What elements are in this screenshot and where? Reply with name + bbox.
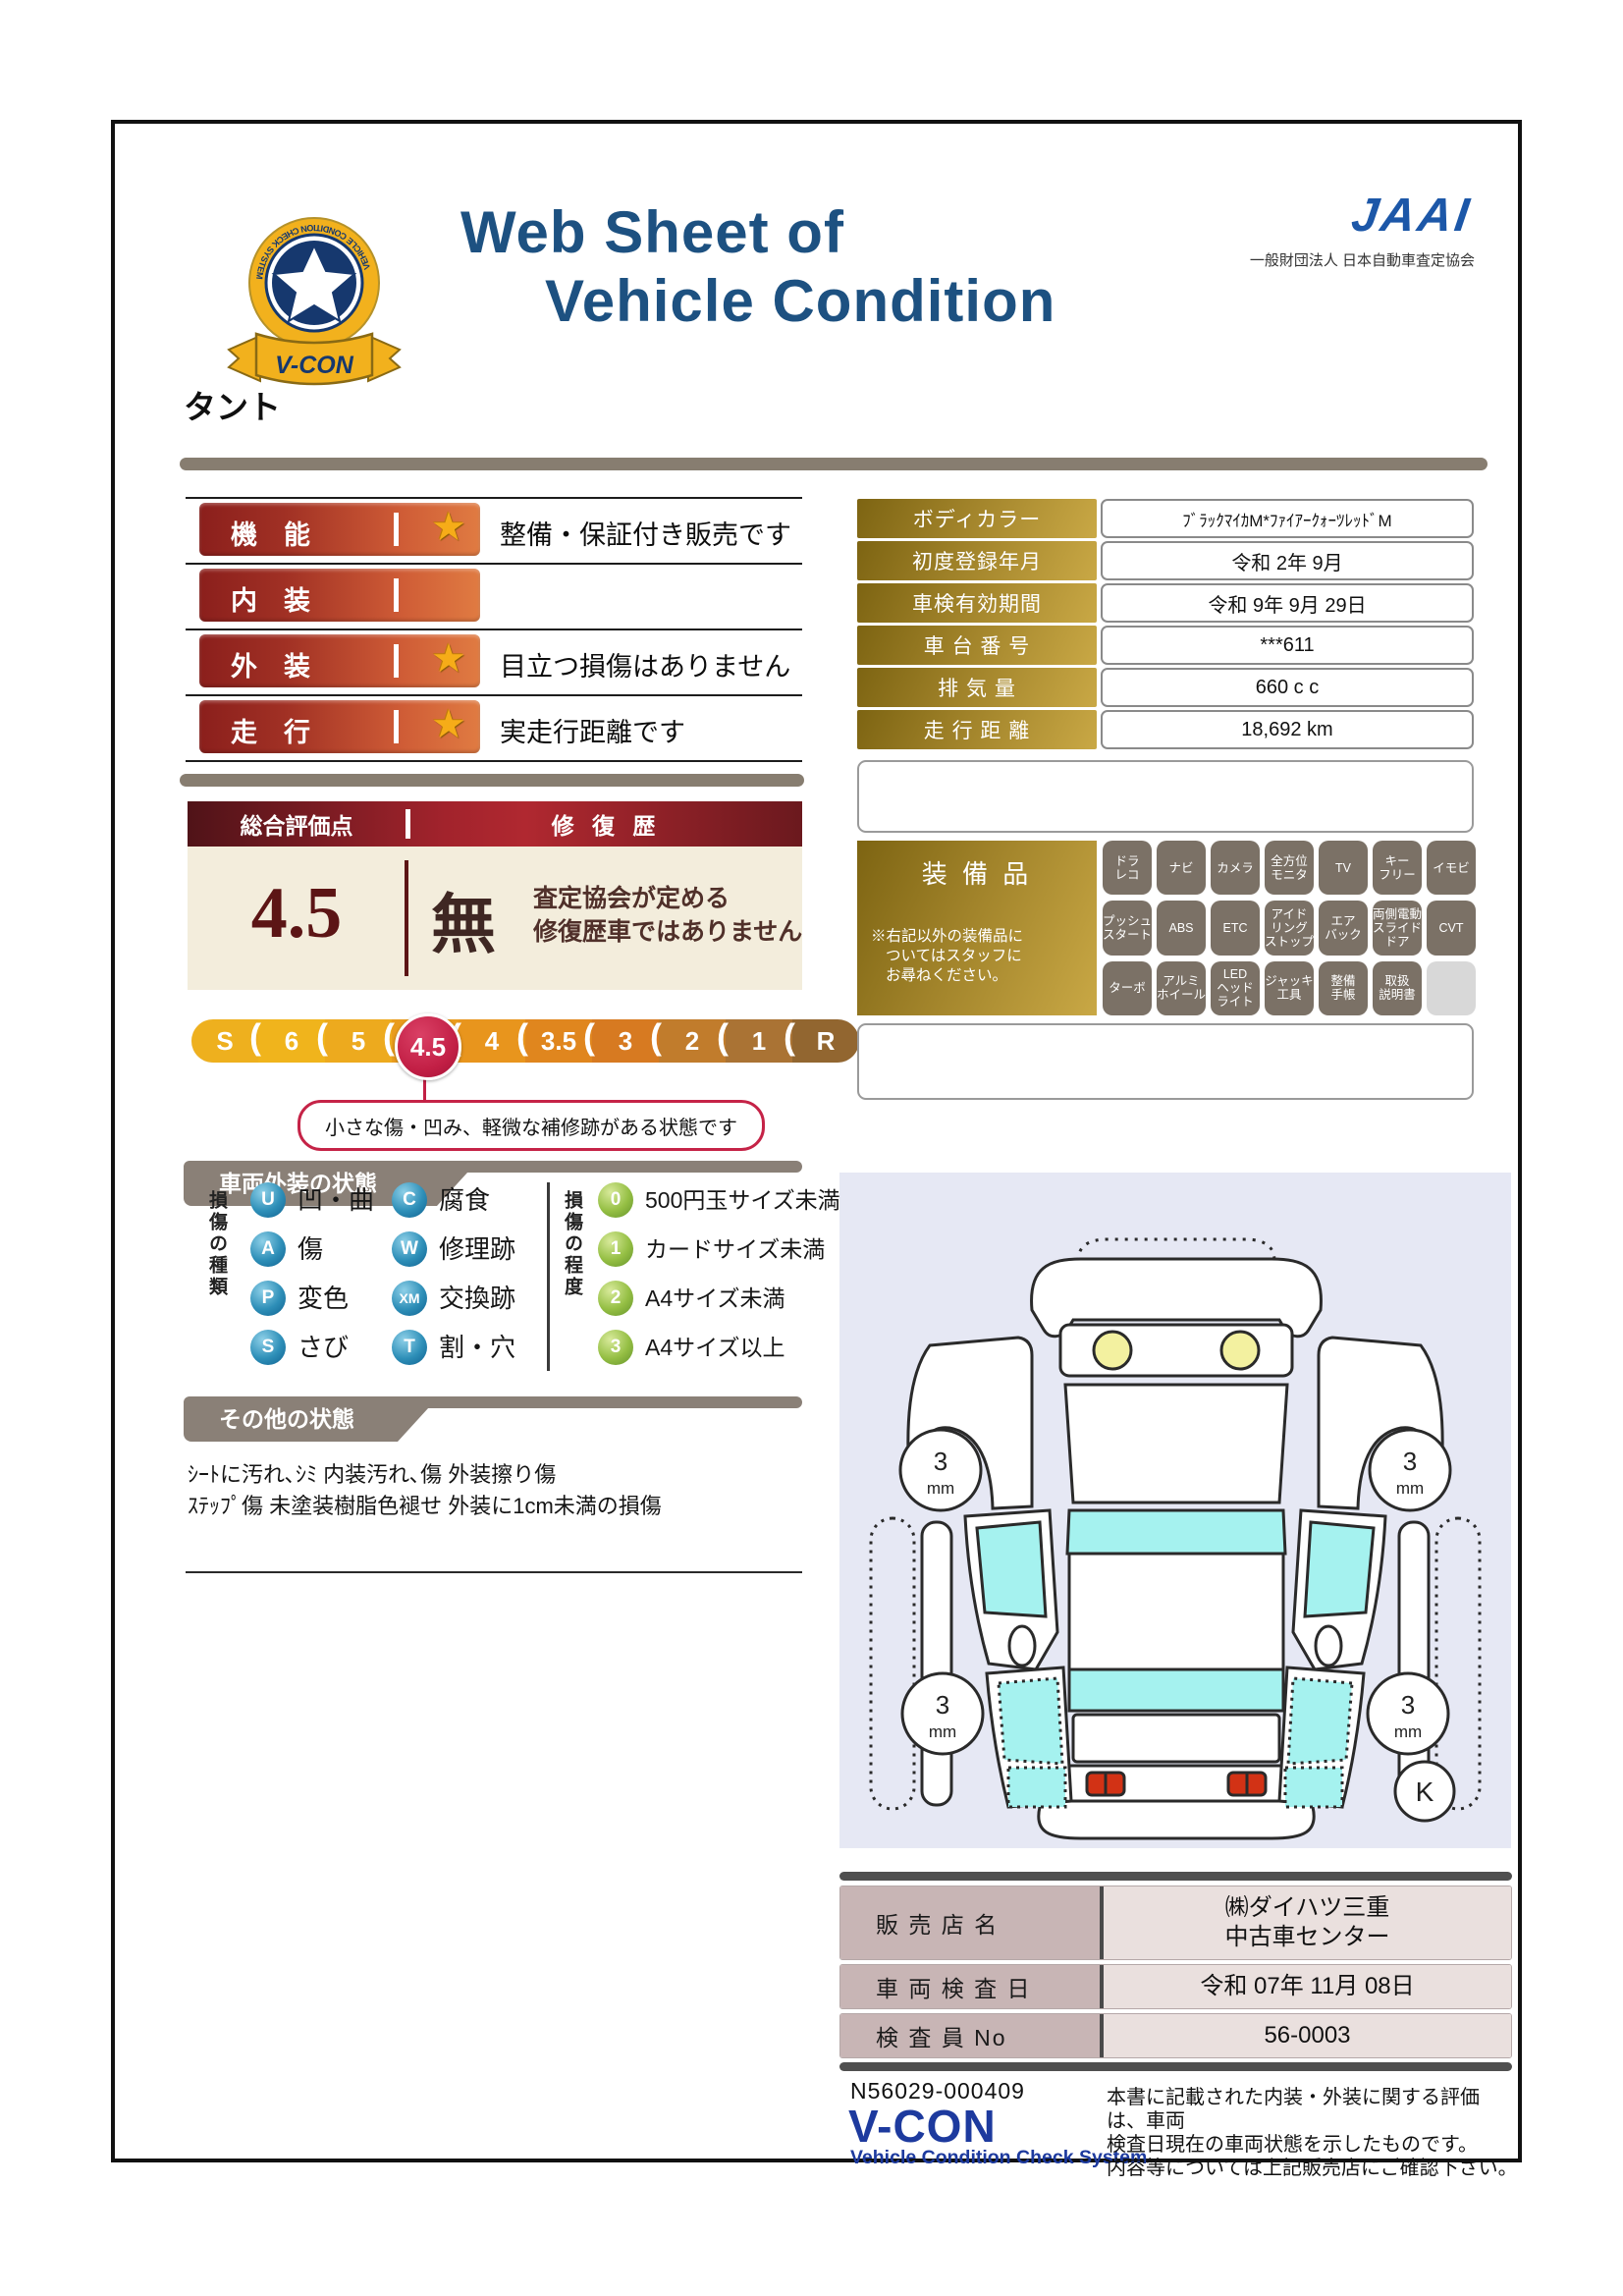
- assessment-vline: [405, 860, 408, 976]
- equipment-badge: LED ヘッド ライト: [1211, 961, 1260, 1015]
- dealer-label: 検 査 員 No: [840, 2014, 1104, 2057]
- scale-step: 3.5: [525, 1019, 592, 1063]
- notes-underline: [186, 1571, 802, 1573]
- legend-divider: [547, 1182, 550, 1371]
- damage-degree-label: A4サイズ未満: [645, 1281, 784, 1316]
- damage-degree-label: 500円玉サイズ未満: [645, 1182, 840, 1218]
- left-lower-patch: [1008, 1768, 1065, 1807]
- rear-window: [1069, 1669, 1283, 1711]
- right-rear-window: [1288, 1678, 1352, 1764]
- banner-title: その他の状態: [184, 1396, 439, 1442]
- equipment-badge: 整備 手帳: [1319, 961, 1368, 1015]
- rating-rule: [186, 497, 802, 499]
- divider-top: [180, 458, 1488, 470]
- equipment-badge: アルミ ホイール: [1157, 961, 1206, 1015]
- damage-degree-marker: 3: [598, 1330, 633, 1365]
- rating-label: 外 装: [231, 645, 310, 683]
- car-unfolded-diagram: 3 mm 3 mm 3 mm 3 mm K: [839, 1173, 1511, 1848]
- repair-note-line2: 修復歴車ではありません: [533, 915, 802, 949]
- star-icon: ★: [417, 505, 480, 550]
- vcon-badge-logo: VEHICLE CONDITION CHECK SYSTEM JAAI V-CO…: [209, 206, 419, 403]
- degree-legend-title: 損傷の程度: [559, 1190, 585, 1298]
- damage-type-label: 修理跡: [439, 1231, 515, 1267]
- damage-type-marker: W: [392, 1231, 427, 1267]
- rear-bumper: [1039, 1801, 1314, 1838]
- rating-separator: [394, 578, 399, 612]
- blank-panel: [857, 1023, 1474, 1100]
- tread-unit: mm: [1396, 1479, 1424, 1498]
- scale-step: 2: [659, 1019, 726, 1063]
- info-value: 18,692 km: [1101, 710, 1474, 749]
- tread-value: 3: [1401, 1690, 1415, 1720]
- exterior-diagram-panel: 3 mm 3 mm 3 mm 3 mm K: [839, 1173, 1511, 1848]
- tread-value: 3: [934, 1447, 947, 1476]
- rating-description: 実走行距離です: [500, 711, 824, 749]
- rating-label: 走 行: [231, 711, 310, 749]
- rating-description: 整備・保証付き販売です: [500, 514, 824, 552]
- rating-rule: [186, 694, 802, 696]
- damage-type-label: 交換跡: [439, 1281, 515, 1316]
- rating-separator: [394, 710, 399, 743]
- headlight-left-icon: [1094, 1332, 1131, 1369]
- rating-row-exterior: 外 装 ★ 目立つ損傷はありません: [199, 634, 480, 687]
- damage-type-marker: A: [250, 1231, 286, 1267]
- damage-type-label: 傷: [298, 1231, 323, 1267]
- equipment-badge: エア バック: [1319, 901, 1368, 955]
- damage-type-label: 凹・曲: [298, 1182, 374, 1218]
- rating-row-function: 機 能 ★ 整備・保証付き販売です: [199, 503, 480, 556]
- scale-step: 1: [726, 1019, 792, 1063]
- jaai-subtitle: 一般財団法人 日本自動車査定協会: [1250, 249, 1475, 270]
- equipment-badge: キー フリー: [1373, 841, 1422, 895]
- dealer-table-bottom-bar: [839, 2062, 1512, 2071]
- right-front-window: [1305, 1522, 1374, 1616]
- tread-unit: mm: [927, 1479, 954, 1498]
- other-section-banner: その他の状態: [184, 1396, 802, 1442]
- info-label: 初度登録年月: [857, 541, 1097, 580]
- footer-disclaimer: 本書に記載された内装・外装に関する評価は、車両 検査日現在の車両状態を示したもの…: [1107, 2086, 1518, 2180]
- selected-score-marker: 4.5: [395, 1013, 461, 1080]
- equipment-badge: 両側電動 スライド ドア: [1373, 901, 1422, 955]
- damage-degree-marker: 2: [598, 1281, 633, 1316]
- badge-star-label: JAAI: [296, 274, 335, 293]
- corner-mark: K: [1416, 1777, 1434, 1807]
- rating-rule: [186, 563, 802, 565]
- tailgate-panel: [1073, 1715, 1279, 1762]
- info-label: 車 台 番 号: [857, 626, 1097, 665]
- blank-panel: [857, 760, 1474, 833]
- repair-history-none: 無: [431, 872, 496, 966]
- equipment-badge: プッシュ スタート: [1103, 901, 1152, 955]
- equipment-grid: ドラ レコ ナビ カメラ 全方位 モニタ TV キー フリー イモビ プッシュ …: [1103, 841, 1476, 1015]
- equipment-badge: カメラ: [1211, 841, 1260, 895]
- scale-step: 6: [258, 1019, 325, 1063]
- equipment-note-line: お尋ねください。: [871, 966, 1023, 986]
- info-value: ***611: [1101, 626, 1474, 665]
- equipment-badge: 全方位 モニタ: [1265, 841, 1314, 895]
- right-door-handle: [1316, 1626, 1341, 1666]
- repair-history-note: 査定協会が定める 修復歴車ではありません: [533, 882, 802, 949]
- equipment-badge: TV: [1319, 841, 1368, 895]
- equipment-note-line: ※右記以外の装備品に: [871, 927, 1023, 947]
- equipment-badge: アイド リング ストップ: [1265, 901, 1314, 955]
- equipment-badge: ABS: [1157, 901, 1206, 955]
- divider-mid: [180, 774, 804, 787]
- scale-step: 5: [325, 1019, 392, 1063]
- tail-light-left-icon: [1087, 1773, 1124, 1795]
- damage-degree-marker: 0: [598, 1182, 633, 1218]
- sheet-canvas: VEHICLE CONDITION CHECK SYSTEM JAAI V-CO…: [0, 0, 1623, 2296]
- rating-description: 目立つ損傷はありません: [500, 645, 824, 683]
- document-page: VEHICLE CONDITION CHECK SYSTEM JAAI V-CO…: [111, 120, 1522, 2162]
- headlight-right-icon: [1221, 1332, 1259, 1369]
- damage-degree-label: A4サイズ以上: [645, 1330, 784, 1365]
- dealer-value: 56-0003: [1104, 2014, 1511, 2057]
- roof-panel: [1069, 1554, 1283, 1669]
- info-label: 排 気 量: [857, 668, 1097, 707]
- equipment-badge: ターボ: [1103, 961, 1152, 1015]
- damage-type-marker: U: [250, 1182, 286, 1218]
- rating-rule: [186, 629, 802, 630]
- dealer-label: 販 売 店 名: [840, 1886, 1104, 1959]
- tread-value: 3: [1403, 1447, 1417, 1476]
- equipment-badge: ナビ: [1157, 841, 1206, 895]
- damage-type-marker: C: [392, 1182, 427, 1218]
- rating-label: 内 装: [231, 579, 310, 618]
- dealer-value: ㈱ダイハツ三重 中古車センター: [1104, 1886, 1511, 1959]
- info-value: 令和 9年 9月 29日: [1101, 583, 1474, 623]
- rating-row-interior: 内 装: [199, 569, 480, 622]
- rating-separator: [394, 644, 399, 678]
- tread-value: 3: [936, 1690, 949, 1720]
- repair-note-line1: 査定協会が定める: [533, 882, 802, 915]
- rating-rule: [186, 760, 802, 762]
- dealer-row-shop: 販 売 店 名 ㈱ダイハツ三重 中古車センター: [839, 1886, 1512, 1960]
- overall-score: 4.5: [188, 872, 406, 956]
- scale-step: 3: [592, 1019, 659, 1063]
- left-front-window: [977, 1522, 1046, 1616]
- score-scale: S 6 5 4.5 4 3.5 3 2 1 R: [191, 1019, 859, 1063]
- equipment-badge: ETC: [1211, 901, 1260, 955]
- star-icon: ★: [417, 702, 480, 747]
- assessment-header-score-label: 総合評価点: [188, 807, 406, 841]
- info-label: ボディカラー: [857, 499, 1097, 538]
- dealer-value: 令和 07年 11月 08日: [1104, 1965, 1511, 2008]
- damage-type-label: 割・穴: [439, 1330, 515, 1365]
- info-value: ﾌﾞﾗｯｸﾏｲｶM*ﾌｧｲｱｰｸｫｰﾂﾚｯﾄﾞM: [1101, 499, 1474, 538]
- dealer-row-inspection-date: 車 両 検 査 日 令和 07年 11月 08日: [839, 1964, 1512, 2009]
- info-label: 車検有効期間: [857, 583, 1097, 623]
- info-value: 660 c c: [1101, 668, 1474, 707]
- page-title-line2: Vehicle Condition: [545, 267, 1055, 335]
- right-sill-dashed: [1436, 1518, 1480, 1809]
- jaai-logo: JAAI: [1348, 189, 1475, 243]
- left-door-handle: [1009, 1626, 1035, 1666]
- equipment-note-line: ついてはスタッフに: [871, 947, 1023, 966]
- windshield: [1067, 1510, 1285, 1554]
- info-value: 令和 2年 9月: [1101, 541, 1474, 580]
- left-sill-dashed: [871, 1518, 914, 1809]
- right-lower-patch: [1285, 1768, 1342, 1807]
- damage-type-marker: P: [250, 1281, 286, 1316]
- rating-separator: [394, 513, 399, 546]
- badge-brand-label: V-CON: [275, 352, 354, 379]
- info-label: 走 行 距 離: [857, 710, 1097, 749]
- equipment-note: ※右記以外の装備品に ついてはスタッフに お尋ねください。: [871, 927, 1023, 986]
- scale-step: R: [792, 1019, 859, 1063]
- equipment-badge: イモビ: [1427, 841, 1476, 895]
- rating-row-mileage: 走 行 ★ 実走行距離です: [199, 700, 480, 753]
- dealer-label: 車 両 検 査 日: [840, 1965, 1104, 2008]
- equipment-badge-empty: [1427, 961, 1476, 1015]
- hood-panel: [1065, 1385, 1287, 1503]
- damage-type-marker: T: [392, 1330, 427, 1365]
- dealer-table-top-bar: [839, 1872, 1512, 1881]
- vcon-brand-subtitle: Vehicle Condition Check System: [850, 2147, 1147, 2169]
- damage-type-label: 変色: [298, 1281, 349, 1316]
- rating-label: 機 能: [231, 514, 310, 552]
- star-icon: ★: [417, 636, 480, 682]
- assessment-header: 総合評価点 修 復 歴: [188, 801, 802, 847]
- dealer-row-inspector: 検 査 員 No 56-0003: [839, 2013, 1512, 2058]
- equipment-title: 装 備 品: [857, 854, 1097, 891]
- type-legend-title: 損傷の種類: [203, 1190, 230, 1298]
- equipment-badge: CVT: [1427, 901, 1476, 955]
- damage-type-label: さび: [298, 1330, 349, 1365]
- tread-unit: mm: [929, 1722, 956, 1741]
- tread-unit: mm: [1394, 1722, 1422, 1741]
- damage-type-marker: XM: [392, 1281, 427, 1316]
- left-rear-window: [999, 1678, 1062, 1764]
- equipment-badge: ドラ レコ: [1103, 841, 1152, 895]
- equipment-panel: 装 備 品 ※右記以外の装備品に ついてはスタッフに お尋ねください。: [857, 841, 1097, 1015]
- damage-degree-label: カードサイズ未満: [645, 1231, 825, 1267]
- other-condition-notes: ｼｰﾄに汚れ､ｼﾐ 内装汚れ､傷 外装擦り傷 ｽﾃｯﾌﾟ傷 未塗装樹脂色褪せ 外…: [188, 1459, 662, 1522]
- page-title-line1: Web Sheet of: [460, 198, 844, 266]
- vehicle-name: タント: [184, 381, 281, 428]
- assessment-body: 4.5 無 査定協会が定める 修復歴車ではありません: [188, 847, 802, 990]
- vcon-brand: V-CON: [848, 2100, 997, 2153]
- equipment-badge: ジャッキ 工具: [1265, 961, 1314, 1015]
- damage-type-label: 腐食: [439, 1182, 490, 1218]
- score-callout: 小さな傷・凹み、軽微な補修跡がある状態です: [298, 1100, 765, 1151]
- damage-type-marker: S: [250, 1330, 286, 1365]
- tail-light-right-icon: [1228, 1773, 1266, 1795]
- scale-step: S: [191, 1019, 258, 1063]
- left-sill: [922, 1522, 951, 1805]
- scale-step: 4: [459, 1019, 525, 1063]
- damage-degree-marker: 1: [598, 1231, 633, 1267]
- equipment-badge: 取扱 説明書: [1373, 961, 1422, 1015]
- assessment-header-repair-label: 修 復 歴: [410, 807, 802, 841]
